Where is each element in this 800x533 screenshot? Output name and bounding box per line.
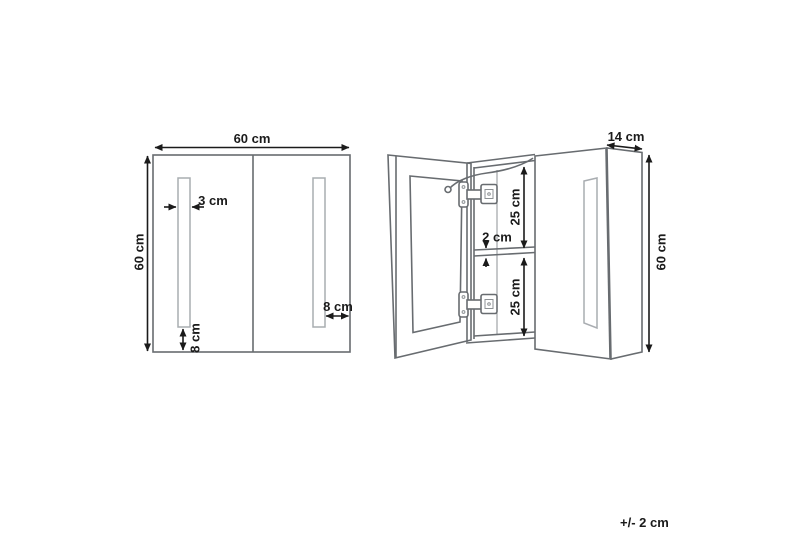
front-left-led-strip: [178, 178, 190, 327]
closed-door-unit: [535, 148, 642, 359]
open-side-view: 14 cm 60 cm 25 cm 2 cm 25 cm: [388, 129, 669, 359]
front-width-dimension: 60 cm: [155, 131, 349, 148]
front-strip-side-offset-dimension: 8 cm: [323, 299, 353, 316]
depth-label: 14 cm: [608, 129, 645, 144]
shelf: [474, 247, 535, 256]
front-view: 60 cm 60 cm 3 cm 8 cm 8 cm: [132, 131, 353, 353]
closed-door-led-strip: [584, 178, 597, 328]
front-height-label: 60 cm: [132, 234, 147, 271]
tolerance-note: +/- 2 cm: [620, 515, 669, 530]
open-height-dimension: 60 cm: [649, 155, 669, 352]
lower-compartment-label: 25 cm: [508, 279, 523, 316]
upper-compartment-label: 25 cm: [508, 189, 523, 226]
lower-hinge-icon: [459, 292, 497, 317]
upper-hinge-icon: [459, 182, 497, 207]
open-height-label: 60 cm: [654, 234, 669, 271]
front-height-dimension: 60 cm: [132, 156, 148, 351]
lower-compartment-dimension: 25 cm: [508, 258, 525, 336]
front-strip-bottom-offset-label: 8 cm: [188, 323, 203, 353]
front-strip-side-offset-label: 8 cm: [323, 299, 353, 314]
technical-drawing-canvas: 60 cm 60 cm 3 cm 8 cm 8 cm: [0, 0, 800, 533]
front-strip-width-label: 3 cm: [198, 193, 228, 208]
depth-dimension: 14 cm: [607, 129, 644, 149]
open-door-mirror-panel: [410, 176, 462, 333]
front-width-label: 60 cm: [234, 131, 271, 146]
shelf-thickness-label: 2 cm: [482, 230, 512, 245]
cabinet-dimension-diagram: 60 cm 60 cm 3 cm 8 cm 8 cm: [0, 0, 800, 533]
